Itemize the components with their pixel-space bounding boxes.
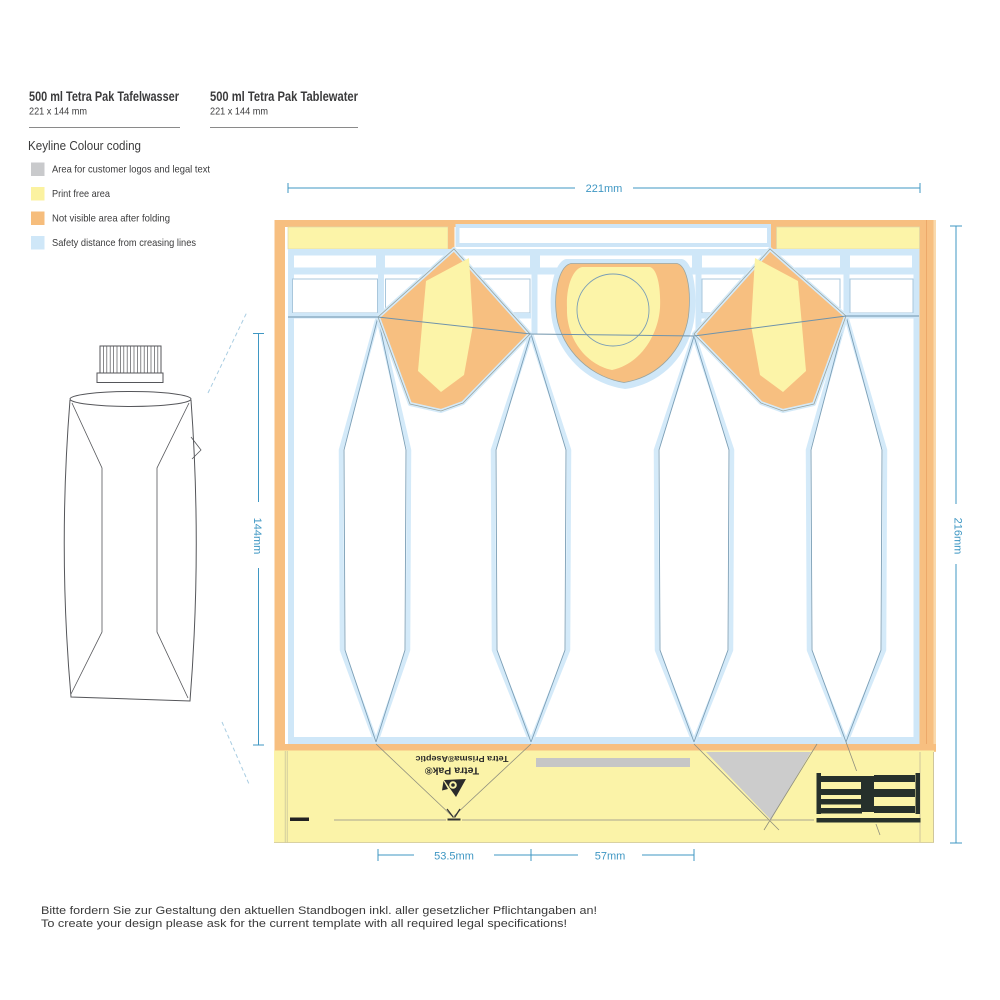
svg-text:Keyline Colour coding: Keyline Colour coding xyxy=(28,138,141,153)
svg-text:500 ml Tetra Pak Tafelwasser: 500 ml Tetra Pak Tafelwasser xyxy=(29,89,180,104)
svg-text:Tetra Pak®: Tetra Pak® xyxy=(425,765,479,777)
svg-text:Area for customer logos and le: Area for customer logos and legal text xyxy=(52,164,210,176)
svg-text:221 x 144 mm: 221 x 144 mm xyxy=(29,106,87,118)
svg-text:Not visible area after folding: Not visible area after folding xyxy=(52,213,170,225)
svg-text:221 x 144 mm: 221 x 144 mm xyxy=(210,106,268,118)
svg-text:Bitte fordern Sie zur Gestaltu: Bitte fordern Sie zur Gestaltung den akt… xyxy=(41,905,597,917)
svg-text:144mm: 144mm xyxy=(251,518,263,555)
svg-text:Tetra Prisma®Aseptic: Tetra Prisma®Aseptic xyxy=(415,754,509,763)
svg-text:53.5mm: 53.5mm xyxy=(434,851,474,863)
svg-text:To create your design please a: To create your design please ask for the… xyxy=(41,918,567,930)
svg-text:216mm: 216mm xyxy=(952,518,964,555)
svg-text:500 ml Tetra Pak Tablewater: 500 ml Tetra Pak Tablewater xyxy=(210,89,359,104)
svg-text:221mm: 221mm xyxy=(586,183,623,195)
svg-text:57mm: 57mm xyxy=(595,851,626,863)
svg-text:Safety distance from creasing: Safety distance from creasing lines xyxy=(52,237,196,249)
svg-text:Print free area: Print free area xyxy=(52,188,110,200)
